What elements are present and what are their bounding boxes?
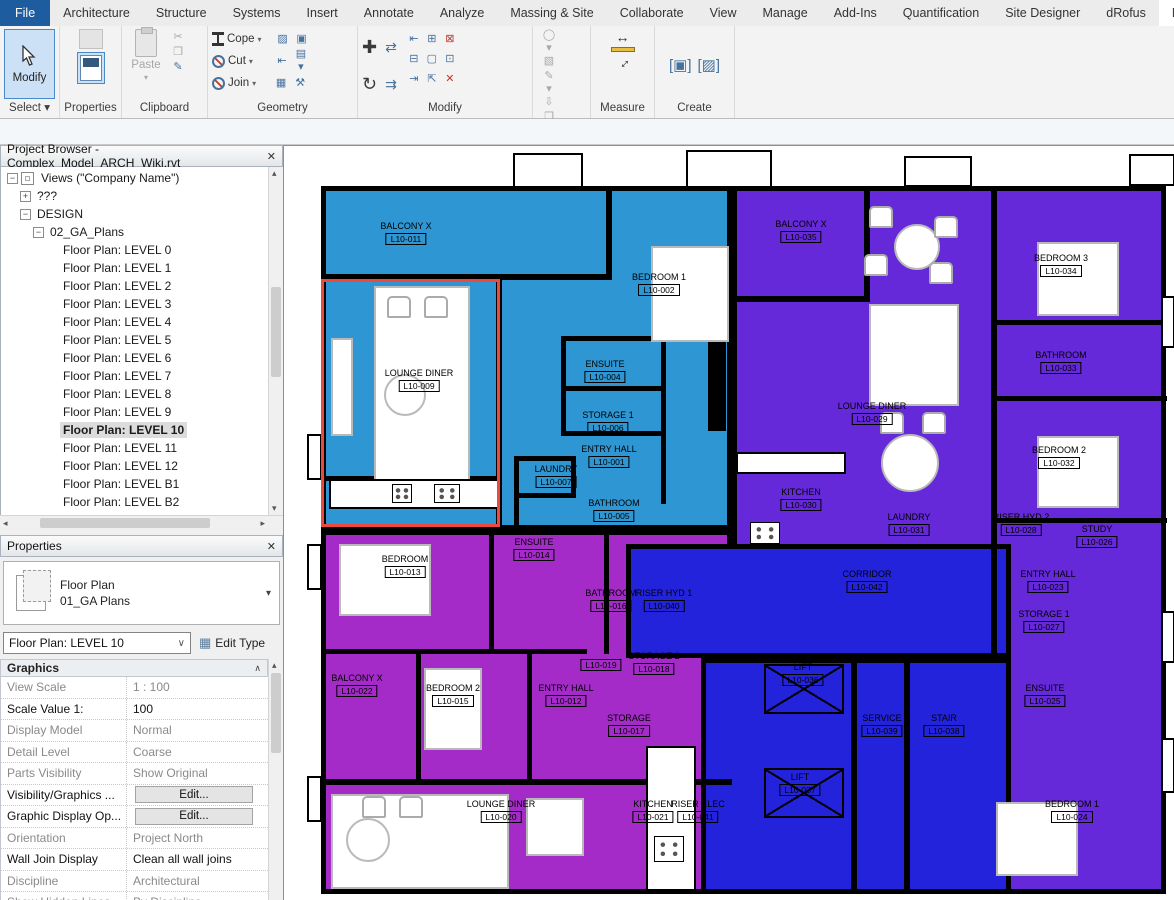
room-l10-021[interactable]: KITCHENL10-021 [632, 799, 673, 823]
window-bay-9 [307, 776, 322, 822]
tree-item-label: Floor Plan: LEVEL 6 [60, 350, 174, 366]
room-number: L10-015 [432, 695, 473, 707]
property-row-parts-visibility: Parts VisibilityShow Original [1, 763, 268, 785]
room-number: L10-007 [535, 476, 576, 488]
room-l10-035[interactable]: BALCONY XL10-035 [775, 219, 826, 243]
room-number: L10-030 [780, 499, 821, 511]
property-name: Visibility/Graphics ... [1, 785, 127, 806]
table-round-26 [346, 818, 390, 862]
window-bay-7 [307, 434, 322, 480]
property-value: Edit... [127, 785, 268, 806]
ribbon-tab-analyze[interactable]: Analyze [427, 0, 497, 26]
views-icon [21, 172, 34, 185]
split-element-icon[interactable]: ⊞ [424, 33, 440, 46]
panel-caption-select[interactable]: Select ▾ [0, 101, 59, 118]
props-scroll-up-icon[interactable]: ▴ [272, 660, 277, 671]
room-l10-018[interactable]: STORAGE 2L10-018 [628, 651, 679, 675]
tree-item-label: Floor Plan: LEVEL 7 [60, 368, 174, 384]
tree-scroll-thumb[interactable] [271, 287, 281, 377]
type-name: Floor Plan [60, 577, 130, 593]
property-name: Display Model [1, 720, 127, 741]
room-number: L10-022 [336, 685, 377, 697]
ribbon-tab-annotate[interactable]: Annotate [351, 0, 427, 26]
tree-item-[interactable]: +??? [1, 187, 268, 205]
create-group-icon[interactable]: [▣] [669, 56, 692, 74]
room-l10-004[interactable]: ENSUITEL10-004 [584, 359, 625, 383]
wall-segment-10 [514, 456, 519, 530]
tree-item-label: Floor Plan: LEVEL 9 [60, 404, 174, 420]
property-name: View Scale [1, 677, 127, 698]
room-l10-039[interactable]: SERVICEL10-039 [861, 713, 902, 737]
panel-modify: ✚ ↻ ⇄ ⇉ ⇤ ⊞ ⊠ ⊟ ▢ ⊡ ⇥ ⇱ ✕ [358, 26, 533, 118]
room-l10-034[interactable]: BEDROOM 3L10-034 [1034, 253, 1088, 277]
room-name: BEDROOM [382, 554, 429, 565]
room-l10-014[interactable]: ENSUITEL10-014 [513, 537, 554, 561]
room-l10-036[interactable]: LIFTL10-036 [782, 662, 823, 686]
ribbon-empty-space [735, 26, 1174, 118]
ribbon-tab-manage[interactable]: Manage [750, 0, 821, 26]
ribbon-tab-bar: FileArchitectureStructureSystemsInsertAn… [0, 0, 1174, 26]
ribbon-tab-architecture[interactable]: Architecture [50, 0, 143, 26]
room-number: L10-039 [861, 725, 902, 737]
room-l10-013[interactable]: BEDROOML10-013 [382, 554, 429, 578]
room-name: BATHROOM [585, 588, 636, 599]
room-name: STORAGE 1 [582, 410, 633, 421]
tree-item-floor-plan-level-8[interactable]: Floor Plan: LEVEL 8 [1, 385, 268, 403]
room-l10-005[interactable]: BATHROOML10-005 [588, 498, 639, 522]
tree-horizontal-scrollbar[interactable]: ◂ ▸ [0, 515, 283, 530]
room-name: BEDROOM 1 [632, 272, 686, 283]
room-number: L10-017 [608, 725, 649, 737]
room-name: LAUNDRY [535, 464, 578, 475]
room-number: L10-021 [632, 811, 673, 823]
property-value[interactable]: 1 : 100 [127, 677, 268, 698]
instance-selector-combo[interactable]: Floor Plan: LEVEL 10 ∨ [3, 632, 191, 654]
room-name: LIFT [782, 662, 823, 673]
edit-type-icon: ▦ [199, 635, 211, 651]
property-name: Show Hidden Lines [1, 892, 127, 900]
room-name: STORAGE [607, 713, 651, 724]
room-name: BEDROOM 2 [1032, 445, 1086, 456]
scroll-up-icon[interactable]: ▴ [272, 168, 277, 179]
property-value[interactable]: Architectural [127, 871, 268, 892]
room-name: STORAGE 1 [1018, 609, 1069, 620]
wall-segment-11 [732, 296, 870, 302]
panel-geometry: Cope ▾ ▨ ▣ Cut ▾ ⇤ ▤ ▾ Join ▾ ▦ [208, 26, 358, 118]
chair-27 [362, 796, 386, 818]
room-number: L10-005 [593, 510, 634, 522]
join-button[interactable]: Join [228, 77, 249, 89]
room-name: BALCONY X [380, 221, 431, 232]
type-selector-dropdown-icon[interactable]: ▾ [266, 588, 271, 599]
room-name: BEDROOM 1 [1045, 799, 1099, 810]
tree-item-floor-plan-level-b1[interactable]: Floor Plan: LEVEL B1 [1, 475, 268, 493]
collapse-expander-icon[interactable]: − [20, 209, 31, 220]
room-l10-023[interactable]: ENTRY HALLL10-023 [1020, 569, 1075, 593]
tree-item-label: Floor Plan: LEVEL 4 [60, 314, 174, 330]
create-assembly-icon[interactable]: [▨] [698, 56, 721, 74]
scale-icon[interactable]: ▢ [424, 53, 440, 66]
tree-item-floor-plan-level-2[interactable]: Floor Plan: LEVEL 2 [1, 277, 268, 295]
wall-segment-18 [904, 658, 910, 894]
room-l10-029[interactable]: LOUNGE DINERL10-029 [838, 401, 907, 425]
ribbon-tab-modify[interactable]: Modify [1159, 0, 1174, 26]
property-value[interactable]: Project North [127, 828, 268, 849]
tree-item-floor-plan-level-7[interactable]: Floor Plan: LEVEL 7 [1, 367, 268, 385]
pin-icon[interactable]: ⊡ [442, 53, 458, 66]
copy-to-clipboard-icon[interactable]: ❐ [170, 46, 186, 59]
paste-dropdown-arrow[interactable]: ▾ [144, 73, 148, 82]
room-l10-011[interactable]: BALCONY XL10-011 [380, 221, 431, 245]
solid-geometry-icon[interactable]: ▣ [294, 33, 310, 46]
room-name: BALCONY X [775, 219, 826, 230]
rotate-icon[interactable]: ↻ [362, 76, 377, 92]
room-name: BALCONY X [331, 673, 382, 684]
linework-icon[interactable]: ✎ ▾ ⇩ [541, 70, 557, 109]
wall-segment-19 [489, 530, 494, 654]
properties-close-icon[interactable]: ✕ [267, 540, 276, 553]
property-value[interactable]: By Discipline [127, 892, 268, 900]
property-value[interactable]: Show Original [127, 763, 268, 784]
chair-16 [922, 412, 946, 434]
ribbon-tab-massing-site[interactable]: Massing & Site [497, 0, 606, 26]
room-name: BEDROOM 2 [426, 683, 480, 694]
room-number: L10-019 [580, 659, 621, 671]
cope-button[interactable]: Cope [227, 33, 255, 45]
join-dropdown-arrow[interactable]: ▾ [252, 79, 256, 88]
furniture-rect-24 [424, 668, 482, 750]
match-properties-icon[interactable]: ✎ [170, 61, 186, 74]
window-bay-8 [307, 544, 322, 590]
room-name: ENTRY HALL [1020, 569, 1075, 580]
room-number: L10-013 [384, 566, 425, 578]
room-l10-006[interactable]: STORAGE 1L10-006 [582, 410, 633, 434]
ribbon-tab-add-ins[interactable]: Add-Ins [821, 0, 890, 26]
window-bay-2 [904, 156, 972, 187]
room-number: L10-014 [513, 549, 554, 561]
room-l10-019[interactable]: L10-019 [580, 658, 621, 671]
tree-vertical-scrollbar[interactable]: ▴ ▾ [268, 167, 283, 515]
wall-segment-3 [561, 336, 661, 341]
collapse-expander-icon[interactable]: − [33, 227, 44, 238]
tree-item-label: Floor Plan: LEVEL 0 [60, 242, 174, 258]
room-number: L10-018 [633, 663, 674, 675]
room-l10-042[interactable]: CORRIDORL10-042 [843, 569, 892, 593]
properties-title: Properties [7, 539, 62, 553]
cope-icon [212, 32, 224, 46]
room-l10-001[interactable]: ENTRY HALLL10-001 [581, 444, 636, 468]
tree-item-floor-plan-level-9[interactable]: Floor Plan: LEVEL 9 [1, 403, 268, 421]
wall-segment-5 [661, 336, 666, 504]
room-name: BATHROOM [1035, 350, 1086, 361]
trim-corner-icon[interactable]: ⇱ [424, 73, 440, 86]
wall-segment-6 [561, 386, 661, 391]
ribbon-tab-structure[interactable]: Structure [143, 0, 220, 26]
wall-segment-21 [416, 649, 421, 781]
tree-item-label: ??? [34, 188, 60, 204]
stove-icon-22 [750, 522, 780, 544]
property-value[interactable]: 100 [127, 699, 268, 720]
project-browser-title: Project Browser - Complex_Model_ARCH_Wik… [7, 142, 267, 170]
property-name: Graphic Display Op... [1, 806, 127, 827]
panel-caption-clipboard: Clipboard [122, 101, 207, 118]
delete-icon[interactable]: ✕ [442, 73, 458, 86]
paste-icon [135, 29, 157, 57]
room-number: L10-033 [1040, 362, 1081, 374]
tree-item-02-ga-plans[interactable]: −02_GA_Plans [1, 223, 268, 241]
tree-item-design[interactable]: −DESIGN [1, 205, 268, 223]
room-name: LIFT [779, 772, 820, 783]
property-value[interactable]: Coarse [127, 742, 268, 763]
room-l10-022[interactable]: BALCONY XL10-022 [331, 673, 382, 697]
demolish-icon[interactable]: ⇤ [274, 55, 290, 68]
property-name: Detail Level [1, 742, 127, 763]
tree-item-floor-plan-level-4[interactable]: Floor Plan: LEVEL 4 [1, 313, 268, 331]
room-name: RISER ELEC [671, 799, 725, 810]
room-l10-016[interactable]: BATHROOML10-016 [585, 588, 636, 612]
section-collapse-icon[interactable]: ∧ [254, 663, 261, 674]
tree-item-label: Floor Plan: LEVEL 5 [60, 332, 174, 348]
align-icon[interactable]: ⇤ [406, 33, 422, 46]
property-value[interactable]: Clean all wall joins [127, 849, 268, 870]
window-bay-6 [1161, 738, 1174, 793]
room-name: LOUNGE DINER [838, 401, 907, 412]
room-number: L10-011 [386, 233, 427, 245]
room-number: L10-024 [1051, 811, 1092, 823]
room-l10-030[interactable]: KITCHENL10-030 [780, 487, 821, 511]
props-scroll-thumb[interactable] [271, 673, 281, 753]
ribbon-tab-insert[interactable]: Insert [294, 0, 351, 26]
scroll-down-icon[interactable]: ▾ [272, 503, 277, 514]
type-selector[interactable]: Floor Plan 01_GA Plans ▾ [3, 561, 280, 625]
table-round-17 [881, 434, 939, 492]
window-bay-5 [1161, 611, 1174, 663]
tree-item-floor-plan-level-12[interactable]: Floor Plan: LEVEL 12 [1, 457, 268, 475]
room-number: L10-020 [480, 811, 521, 823]
property-button-edit[interactable]: Edit... [135, 808, 253, 825]
tree-item-floor-plan-level-5[interactable]: Floor Plan: LEVEL 5 [1, 331, 268, 349]
property-name: Discipline [1, 871, 127, 892]
panel-select: Modify Select ▾ [0, 26, 60, 118]
tree-item-label: Floor Plan: LEVEL 12 [60, 458, 181, 474]
property-row-detail-level: Detail LevelCoarse [1, 742, 268, 764]
room-l10-041[interactable]: RISER ELECL10-041 [671, 799, 725, 823]
tree-item-label: Floor Plan: LEVEL B2 [60, 494, 182, 510]
tree-hscroll-thumb[interactable] [40, 518, 210, 528]
room-name: STAIR [923, 713, 964, 724]
wall-segment-22 [527, 649, 532, 781]
toggle-analytical-icon[interactable]: ◯ ▾ ▧ [541, 29, 557, 68]
tree-item-label: Floor Plan: LEVEL 8 [60, 386, 174, 402]
room-number: L10-034 [1040, 265, 1081, 277]
property-button-edit[interactable]: Edit... [135, 786, 253, 803]
ribbon-tab-site-designer[interactable]: Site Designer [992, 0, 1093, 26]
room-number: L10-006 [587, 422, 628, 434]
room-name: STORAGE 2 [628, 651, 679, 662]
room-l10-037[interactable]: LIFTL10-037 [779, 772, 820, 796]
tree-item-floor-plan-level-b2[interactable]: Floor Plan: LEVEL B2 [1, 493, 268, 511]
property-name: Wall Join Display [1, 849, 127, 870]
property-value[interactable]: Normal [127, 720, 268, 741]
room-name: CORRIDOR [843, 569, 892, 580]
property-row-discipline: DisciplineArchitectural [1, 871, 268, 893]
measure-horizontal-icon[interactable]: ↔ [616, 29, 630, 45]
properties-titlebar[interactable]: Properties ✕ [0, 535, 283, 557]
room-number: L10-027 [1023, 621, 1064, 633]
room-l10-026[interactable]: STUDYL10-026 [1076, 524, 1117, 548]
cut-dropdown-arrow[interactable]: ▾ [249, 57, 253, 66]
room-l10-025[interactable]: ENSUITEL10-025 [1024, 683, 1065, 707]
properties-scrollbar[interactable]: ▴ [268, 659, 283, 900]
ribbon-tab-systems[interactable]: Systems [220, 0, 294, 26]
tree-item-floor-plan-level-1[interactable]: Floor Plan: LEVEL 1 [1, 259, 268, 277]
tree-item-label: Floor Plan: LEVEL 3 [60, 296, 174, 312]
revit-window: FileArchitectureStructureSystemsInsertAn… [0, 0, 1174, 900]
collapse-expander-icon[interactable]: − [7, 173, 18, 184]
tree-item-label: Floor Plan: LEVEL B1 [60, 476, 182, 492]
room-l10-040[interactable]: RISER HYD 1L10-040 [636, 588, 693, 612]
project-browser-tree: −Views ("Company Name")+???−DESIGN−02_GA… [0, 167, 268, 515]
room-l10-028[interactable]: RISER HYD 2L10-028 [993, 512, 1050, 536]
panel-measure: ↔ ↔ Measure [591, 26, 655, 118]
room-l10-024[interactable]: BEDROOM 1L10-024 [1045, 799, 1099, 823]
room-l10-027[interactable]: STORAGE 1L10-027 [1018, 609, 1069, 633]
room-number: L10-016 [590, 600, 631, 612]
room-l10-015[interactable]: BEDROOM 2L10-015 [426, 683, 480, 707]
room-name: RISER HYD 1 [636, 588, 693, 599]
room-name: ENTRY HALL [538, 683, 593, 694]
window-bay-1 [686, 150, 772, 188]
project-browser-close-icon[interactable]: ✕ [267, 150, 276, 163]
tree-item-views-company-name[interactable]: −Views ("Company Name") [1, 169, 268, 187]
trim-extend-icon[interactable]: ⇥ [406, 73, 422, 86]
room-name: KITCHEN [780, 487, 821, 498]
project-browser-titlebar[interactable]: Project Browser - Complex_Model_ARCH_Wik… [0, 145, 283, 167]
room-number: L10-031 [888, 524, 929, 536]
cope-dropdown-arrow[interactable]: ▾ [258, 35, 262, 44]
drawing-area[interactable]: BALCONY XL10-011LOUNGE DINERL10-009BEDRO… [283, 145, 1174, 900]
measure-diagonal-icon[interactable]: ↔ [612, 51, 633, 72]
unpin-icon[interactable]: ⊠ [442, 33, 458, 46]
wall-segment-13 [991, 186, 997, 658]
room-l10-038[interactable]: STAIRL10-038 [923, 713, 964, 737]
ribbon-tab-view[interactable]: View [697, 0, 750, 26]
property-row-display-model: Display ModelNormal [1, 720, 268, 742]
ribbon-tab-collaborate[interactable]: Collaborate [607, 0, 697, 26]
room-number: L10-025 [1024, 695, 1065, 707]
paste-button[interactable]: Paste [131, 59, 160, 71]
room-l10-007[interactable]: LAUNDRYL10-007 [535, 464, 578, 488]
room-number: L10-026 [1076, 536, 1117, 548]
wall-joins-icon[interactable]: ▤ ▾ [293, 48, 309, 74]
kitchen-counter-21 [736, 452, 846, 474]
wall-segment-20 [321, 649, 587, 654]
property-row-scale-value-1: Scale Value 1:100 [1, 699, 268, 721]
wall-segment-25 [708, 336, 726, 431]
wall-segment-17 [851, 658, 857, 894]
properties-toggle-button[interactable] [77, 52, 105, 84]
property-name: Parts Visibility [1, 763, 127, 784]
room-number: L10-042 [846, 581, 887, 593]
offset-icon[interactable]: ⇉ [385, 76, 397, 92]
join-geometry-icon [212, 77, 225, 90]
tree-item-label: Floor Plan: LEVEL 10 [60, 422, 187, 438]
graphics-section-header[interactable]: Graphics ∧ [0, 659, 268, 677]
room-number: L10-023 [1027, 581, 1068, 593]
move-icon[interactable]: ✚ [362, 39, 377, 55]
tree-item-floor-plan-level-11[interactable]: Floor Plan: LEVEL 11 [1, 439, 268, 457]
tree-item-label: DESIGN [34, 206, 86, 222]
chair-11 [934, 216, 958, 238]
room-number: L10-036 [782, 674, 823, 686]
stove-icon-31 [654, 836, 684, 862]
ribbon-tab-drofus[interactable]: dRofus [1093, 0, 1159, 26]
property-name: Scale Value 1: [1, 699, 127, 720]
room-l10-012[interactable]: ENTRY HALLL10-012 [538, 683, 593, 707]
room-l10-002[interactable]: BEDROOM 1L10-002 [632, 272, 686, 296]
wall-segment-4 [561, 336, 566, 431]
property-row-visibility-graphics: Visibility/Graphics ...Edit... [1, 785, 268, 807]
tree-item-label: Floor Plan: LEVEL 2 [60, 278, 174, 294]
ribbon-tab-file[interactable]: File [0, 0, 50, 26]
room-l10-020[interactable]: LOUNGE DINERL10-020 [467, 799, 536, 823]
tree-item-floor-plan-level-10[interactable]: Floor Plan: LEVEL 10 [1, 421, 268, 439]
room-name: BEDROOM 3 [1034, 253, 1088, 264]
room-name: LAUNDRY [888, 512, 931, 523]
edit-type-button[interactable]: ▦ Edit Type [199, 635, 265, 651]
cut-geometry-extra-icon[interactable]: ▨ [275, 33, 291, 46]
unjoin-icon[interactable]: ⚒ [292, 77, 308, 90]
room-name: ENTRY HALL [581, 444, 636, 455]
mirror-icon[interactable]: ⇄ [385, 39, 397, 55]
room-name: SERVICE [861, 713, 902, 724]
chair-28 [399, 796, 423, 818]
room-number: L10-032 [1038, 457, 1079, 469]
tree-item-floor-plan-level-0[interactable]: Floor Plan: LEVEL 0 [1, 241, 268, 259]
cut-geometry-icon [212, 55, 225, 68]
panel-caption-geometry: Geometry [208, 101, 357, 118]
tree-item-floor-plan-level-6[interactable]: Floor Plan: LEVEL 6 [1, 349, 268, 367]
room-l10-033[interactable]: BATHROOML10-033 [1035, 350, 1086, 374]
type-properties-icon[interactable] [79, 29, 103, 49]
room-name: RISER HYD 2 [993, 512, 1050, 523]
array-icon[interactable]: ⊟ [406, 53, 422, 66]
room-number: L10-002 [638, 284, 679, 296]
tree-item-floor-plan-level-3[interactable]: Floor Plan: LEVEL 3 [1, 295, 268, 313]
property-row-orientation: OrientationProject North [1, 828, 268, 850]
room-number: L10-037 [779, 784, 820, 796]
property-row-graphic-display-op: Graphic Display Op...Edit... [1, 806, 268, 828]
panel-create: [▣] [▨] Create [655, 26, 735, 118]
ribbon-tab-quantification[interactable]: Quantification [890, 0, 992, 26]
ribbon: Modify Select ▾ Properties Paste ▾ [0, 26, 1174, 119]
modify-button[interactable]: Modify [4, 29, 55, 99]
scroll-left-icon[interactable]: ◂ [3, 518, 8, 529]
cut-geometry-button[interactable]: Cut [228, 55, 246, 67]
property-name: Orientation [1, 828, 127, 849]
room-l10-032[interactable]: BEDROOM 2L10-032 [1032, 445, 1086, 469]
wall-segment-15 [991, 396, 1167, 401]
cut-to-clipboard-icon[interactable]: ✂ [170, 31, 186, 44]
room-l10-017[interactable]: STORAGEL10-017 [607, 713, 651, 737]
room-name: STUDY [1076, 524, 1117, 535]
room-l10-031[interactable]: LAUNDRYL10-031 [888, 512, 931, 536]
panel-caption-modify: Modify [358, 101, 532, 118]
beam-joins-icon[interactable]: ▦ [273, 77, 289, 90]
scroll-right-icon[interactable]: ▸ [260, 518, 265, 529]
expand-expander-icon[interactable]: + [20, 191, 31, 202]
wall-segment-12 [864, 186, 870, 302]
